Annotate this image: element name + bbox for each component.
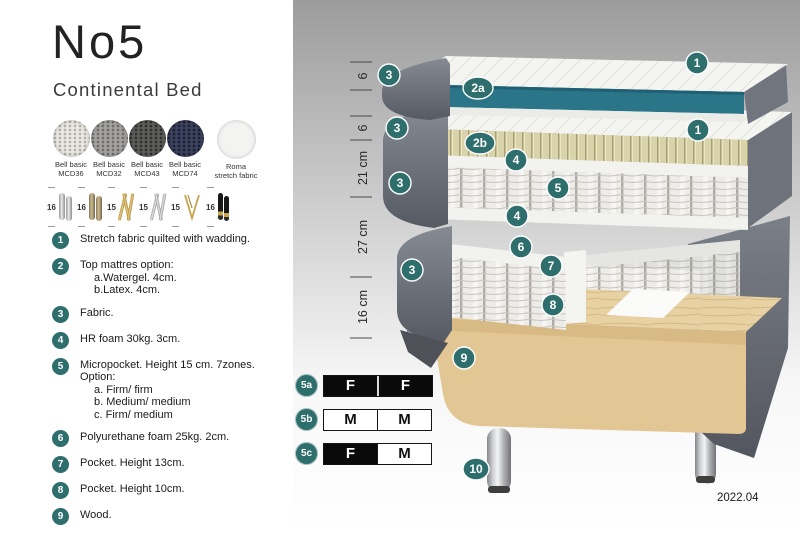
callout-4-upper: 4 — [505, 149, 527, 171]
fabric-code: MCD36 — [58, 169, 83, 178]
feature-sub-option: b.Latex. 4cm. — [94, 284, 177, 297]
feature-item: 2 Top mattres option: a.Watergel. 4cm. b… — [52, 259, 292, 297]
ruler-label: 27 cm — [356, 220, 370, 254]
fabric-swatch-image — [167, 120, 204, 157]
svg-text:3: 3 — [409, 263, 416, 277]
svg-text:1: 1 — [694, 56, 701, 70]
feature-number-badge: 2 — [52, 258, 69, 275]
feature-item: 7 Pocket. Height 13cm. — [52, 457, 292, 473]
callout-7: 7 — [540, 255, 562, 277]
fabric-code: stretch fabric — [215, 171, 258, 180]
firmness-cell: M — [377, 444, 431, 464]
feature-text: Pocket. Height 10cm. — [80, 483, 185, 496]
feature-list: 1 Stretch fabric quilted with wadding. 2… — [52, 233, 292, 533]
feature-sub-option: b. Medium/ medium — [94, 396, 292, 409]
svg-text:6: 6 — [518, 240, 525, 254]
feature-number-badge: 9 — [52, 508, 69, 525]
svg-text:9: 9 — [461, 351, 468, 365]
callout-1-mid: 1 — [687, 119, 709, 141]
firmness-cell: M — [377, 410, 431, 430]
silver-twisted-leg-icon — [151, 187, 166, 227]
svg-text:10: 10 — [469, 462, 483, 476]
feature-item: 4 HR foam 30kg. 3cm. — [52, 333, 292, 349]
fabric-swatch-image — [91, 120, 128, 157]
fabric-swatch-image — [129, 120, 166, 157]
fabric-swatch-image — [53, 120, 90, 157]
front-leg — [487, 428, 511, 492]
feature-item: 8 Pocket. Height 10cm. — [52, 483, 292, 499]
leg-option: 16 — [45, 187, 72, 227]
top-mattress-unit — [382, 56, 788, 124]
diagram-panel: 6 6 21 cm 27 cm 16 cm 1 3 2a 1 3 2b 4 5 … — [293, 0, 800, 533]
ruler-label: 6 — [356, 72, 370, 79]
bronze-leg-icon — [89, 187, 102, 227]
leg-option: 15 — [105, 187, 134, 227]
leg-option: 15 — [137, 187, 166, 227]
callout-1-top: 1 — [686, 52, 708, 74]
feature-item: 3 Fabric. — [52, 307, 292, 323]
feature-number-badge: 6 — [52, 430, 69, 447]
fabric-swatches: Bell basicMCD36 Bell basicMCD32 Bell bas… — [52, 120, 255, 180]
ruler-label: 16 cm — [356, 290, 370, 324]
callout-3-top: 3 — [378, 64, 400, 86]
ruler-label: 6 — [356, 124, 370, 131]
feature-text: HR foam 30kg. 3cm. — [80, 333, 180, 346]
feature-text: Top mattres option: — [80, 259, 177, 272]
side-fabric-left-lower — [397, 226, 452, 342]
firmness-row-label: 5b — [295, 408, 318, 431]
leg-height: 16 — [77, 203, 86, 212]
svg-text:3: 3 — [394, 121, 401, 135]
fabric-code: MCD43 — [134, 169, 159, 178]
hairpin-leg-icon — [183, 187, 201, 227]
callout-5: 5 — [547, 177, 569, 199]
feature-number-badge: 1 — [52, 232, 69, 249]
product-subtitle: Continental Bed — [53, 79, 203, 101]
feature-text: Fabric. — [80, 307, 114, 320]
svg-text:3: 3 — [397, 176, 404, 190]
leg-height: 16 — [47, 203, 56, 212]
fabric-swatch: Bell basicMCD74 — [166, 120, 204, 180]
svg-text:4: 4 — [513, 153, 520, 167]
svg-text:4: 4 — [514, 209, 521, 223]
frame-corner-post — [564, 250, 586, 324]
callout-3-bottom: 3 — [401, 259, 423, 281]
firmness-cell: F — [324, 444, 377, 464]
firmness-row-label: 5a — [295, 374, 318, 397]
svg-text:5: 5 — [555, 181, 562, 195]
chrome-leg-icon — [59, 187, 72, 227]
feature-text: Wood. — [80, 509, 112, 522]
leg-option: 16 — [75, 187, 102, 227]
leg-height: 15 — [107, 203, 116, 212]
leg-height: 15 — [139, 203, 148, 212]
feature-item: 6 Polyurethane foam 25kg. 2cm. — [52, 431, 292, 447]
feature-sub-option: c. Firm/ medium — [94, 409, 292, 422]
svg-text:3: 3 — [386, 68, 393, 82]
leg-height: 15 — [171, 203, 180, 212]
fabric-swatch: Bell basicMCD43 — [128, 120, 166, 180]
fabric-swatch: Bell basicMCD36 — [52, 120, 90, 180]
firmness-cell: F — [377, 376, 432, 396]
feature-text: Polyurethane foam 25kg. 2cm. — [80, 431, 229, 444]
svg-text:2b: 2b — [473, 136, 487, 150]
callout-6: 6 — [510, 236, 532, 258]
gold-twisted-leg-icon — [119, 187, 134, 227]
feature-text: Micropocket. Height 15 cm. 7zones. Optio… — [80, 359, 292, 384]
firmness-row-label: 5c — [295, 442, 318, 465]
fabric-code: MCD32 — [96, 169, 121, 178]
callout-2b: 2b — [465, 132, 495, 154]
firmness-row-5c: 5c F M — [295, 442, 432, 465]
callout-3-lower-mid: 3 — [389, 172, 411, 194]
callout-2a: 2a — [463, 77, 493, 99]
callout-9: 9 — [453, 347, 475, 369]
info-panel: No5 Continental Bed Bell basicMCD36 Bell… — [0, 0, 294, 533]
fabric-swatch: Romastretch fabric — [217, 120, 255, 180]
feature-item: 5 Micropocket. Height 15 cm. 7zones. Opt… — [52, 359, 292, 422]
svg-text:8: 8 — [550, 298, 557, 312]
feature-text: Stretch fabric quilted with wadding. — [80, 233, 250, 246]
firmness-row-5a: 5a F F — [295, 374, 433, 397]
firmness-cell: M — [324, 410, 377, 430]
svg-text:7: 7 — [548, 259, 555, 273]
page: No5 Continental Bed Bell basicMCD36 Bell… — [0, 0, 800, 533]
feature-number-badge: 7 — [52, 456, 69, 473]
feature-number-badge: 3 — [52, 306, 69, 323]
svg-text:2a: 2a — [471, 81, 485, 95]
leg-options: 16 16 15 15 15 16 — [45, 187, 232, 227]
callout-10: 10 — [463, 458, 489, 480]
feature-number-badge: 8 — [52, 482, 69, 499]
firmness-row-5b: 5b M M — [295, 408, 432, 431]
feature-number-badge: 5 — [52, 358, 69, 375]
leg-height: 16 — [206, 203, 215, 212]
fabric-swatch: Bell basicMCD32 — [90, 120, 128, 180]
feature-item: 9 Wood. — [52, 509, 292, 525]
version-label: 2022.04 — [717, 492, 759, 504]
leg-option: 16 — [204, 187, 229, 227]
product-title: No5 — [52, 14, 147, 69]
firmness-cell: F — [324, 376, 377, 396]
fabric-swatch-image — [217, 120, 256, 159]
ruler-label: 21 cm — [356, 151, 370, 185]
feature-number-badge: 4 — [52, 332, 69, 349]
callout-3-mid: 3 — [386, 117, 408, 139]
feature-sub-option: a.Watergel. 4cm. — [94, 272, 177, 285]
fabric-code: MCD74 — [172, 169, 197, 178]
feature-text: Pocket. Height 13cm. — [80, 457, 185, 470]
leg-option: 15 — [169, 187, 201, 227]
callout-8: 8 — [542, 294, 564, 316]
feature-item: 1 Stretch fabric quilted with wadding. — [52, 233, 292, 249]
callout-4-lower: 4 — [506, 205, 528, 227]
black-leg-icon — [218, 187, 229, 227]
feature-sub-option: a. Firm/ firm — [94, 384, 292, 397]
svg-text:1: 1 — [695, 123, 702, 137]
